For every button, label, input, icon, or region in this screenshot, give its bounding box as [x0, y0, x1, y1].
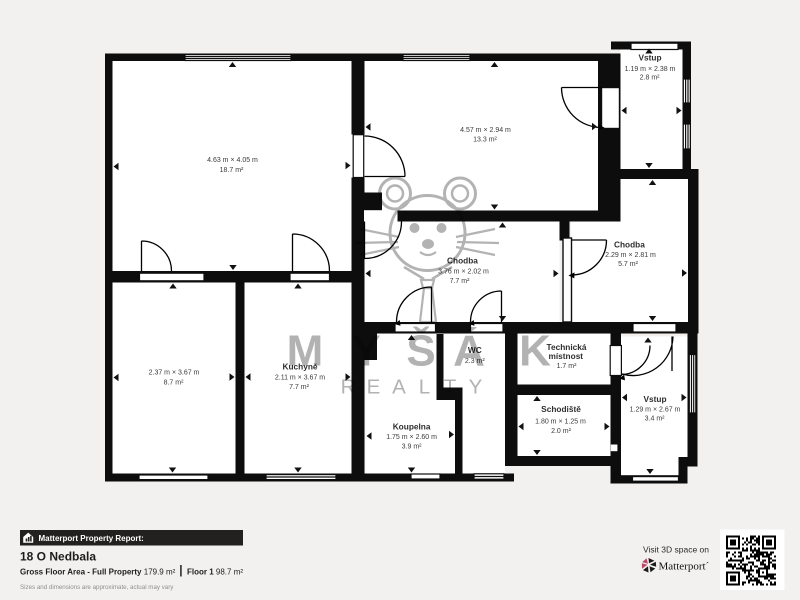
svg-text:7.7 m²: 7.7 m²	[289, 384, 310, 391]
svg-text:2.8 m²: 2.8 m²	[640, 75, 661, 82]
svg-text:2.11 m × 3.67 m: 2.11 m × 3.67 m	[275, 375, 325, 382]
svg-text:13.3 m²: 13.3 m²	[473, 137, 497, 144]
svg-text:7.7 m²: 7.7 m²	[450, 278, 471, 285]
svg-text:A: A	[392, 376, 406, 399]
svg-text:Vstup: Vstup	[638, 53, 661, 63]
svg-text:Floor 1 98.7 m²: Floor 1 98.7 m²	[187, 568, 243, 577]
svg-text:4.63 m × 4.05 m: 4.63 m × 4.05 m	[207, 157, 258, 164]
svg-text:Chodba: Chodba	[614, 240, 645, 250]
svg-text:Schodiště: Schodiště	[541, 404, 581, 414]
svg-text:L: L	[419, 376, 430, 399]
svg-text:Vstup: Vstup	[643, 394, 666, 404]
svg-text:Á: Á	[453, 326, 485, 376]
svg-text:Matterport Property Report:: Matterport Property Report:	[39, 534, 144, 543]
svg-text:Š: Š	[406, 325, 435, 376]
svg-text:R: R	[341, 376, 356, 399]
svg-text:Sizes and dimensions are appro: Sizes and dimensions are approximate, ac…	[20, 584, 174, 591]
svg-text:3.9 m²: 3.9 m²	[402, 444, 423, 451]
svg-text:1.7 m²: 1.7 m²	[557, 363, 578, 370]
svg-text:3.4 m²: 3.4 m²	[645, 416, 666, 423]
svg-text:K: K	[519, 327, 551, 376]
svg-text:2.29 m × 2.81 m: 2.29 m × 2.81 m	[605, 252, 656, 259]
svg-text:1.80 m × 1.25 m: 1.80 m × 1.25 m	[535, 419, 586, 426]
svg-text:Gross Floor Area - Full Proper: Gross Floor Area - Full Property 179.9 m…	[20, 568, 176, 577]
svg-text:8.7 m²: 8.7 m²	[164, 380, 185, 387]
svg-text:2.37 m × 3.67 m: 2.37 m × 3.67 m	[149, 370, 200, 377]
svg-text:1.75 m × 2.60 m: 1.75 m × 2.60 m	[386, 434, 437, 441]
svg-text:5.7 m²: 5.7 m²	[618, 261, 639, 268]
svg-text:M: M	[287, 327, 324, 376]
svg-text:2.0 m²: 2.0 m²	[551, 428, 572, 435]
svg-text:18.7 m²: 18.7 m²	[220, 167, 244, 174]
svg-text:18 O Nedbala: 18 O Nedbala	[20, 550, 96, 564]
svg-text:Visit 3D space on: Visit 3D space on	[643, 545, 709, 555]
svg-text:Y: Y	[351, 327, 380, 376]
svg-text:Matterport´: Matterport´	[659, 561, 710, 573]
svg-text:1.29 m × 2.67 m: 1.29 m × 2.67 m	[630, 406, 681, 413]
svg-text:E: E	[367, 376, 381, 399]
svg-text:1.19 m × 2.38 m: 1.19 m × 2.38 m	[625, 66, 676, 73]
svg-text:Koupelna: Koupelna	[393, 422, 431, 432]
svg-text:Y: Y	[469, 376, 483, 399]
svg-text:místnost: místnost	[549, 351, 584, 361]
svg-text:4.57 m × 2.94 m: 4.57 m × 2.94 m	[460, 127, 511, 134]
svg-text:T: T	[444, 376, 457, 399]
